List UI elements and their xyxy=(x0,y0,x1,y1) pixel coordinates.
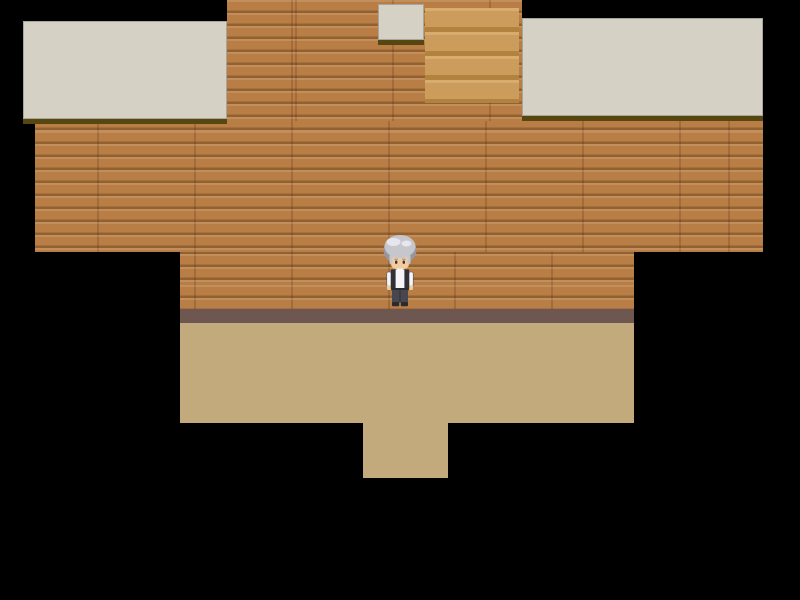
floor-extension[interactable] xyxy=(363,423,448,478)
player-character xyxy=(380,233,420,307)
character-arm xyxy=(387,272,391,287)
character-eye xyxy=(395,261,397,264)
character-hair-highlight xyxy=(402,241,412,247)
character-fringe xyxy=(391,251,410,258)
character-hand xyxy=(387,286,391,291)
roof-left xyxy=(23,21,227,124)
character-hair-highlight xyxy=(387,238,401,246)
character-brow xyxy=(395,259,398,260)
baseboard xyxy=(180,309,634,323)
character-vest xyxy=(404,270,409,290)
character-collar xyxy=(397,269,404,271)
game-viewport[interactable] xyxy=(0,0,800,600)
roof-right xyxy=(522,18,763,121)
character-shoe xyxy=(401,302,408,306)
character-hand xyxy=(409,286,413,291)
character-brow xyxy=(402,259,405,260)
character-vest xyxy=(391,270,396,290)
roof-dormer xyxy=(378,4,424,45)
steps[interactable] xyxy=(425,8,519,103)
character-sprite xyxy=(380,233,420,307)
character-arm xyxy=(409,272,413,287)
floor-main[interactable] xyxy=(180,323,634,423)
character-eye xyxy=(403,261,405,264)
character-pants-seam xyxy=(399,290,400,303)
character-shoe xyxy=(392,302,399,306)
